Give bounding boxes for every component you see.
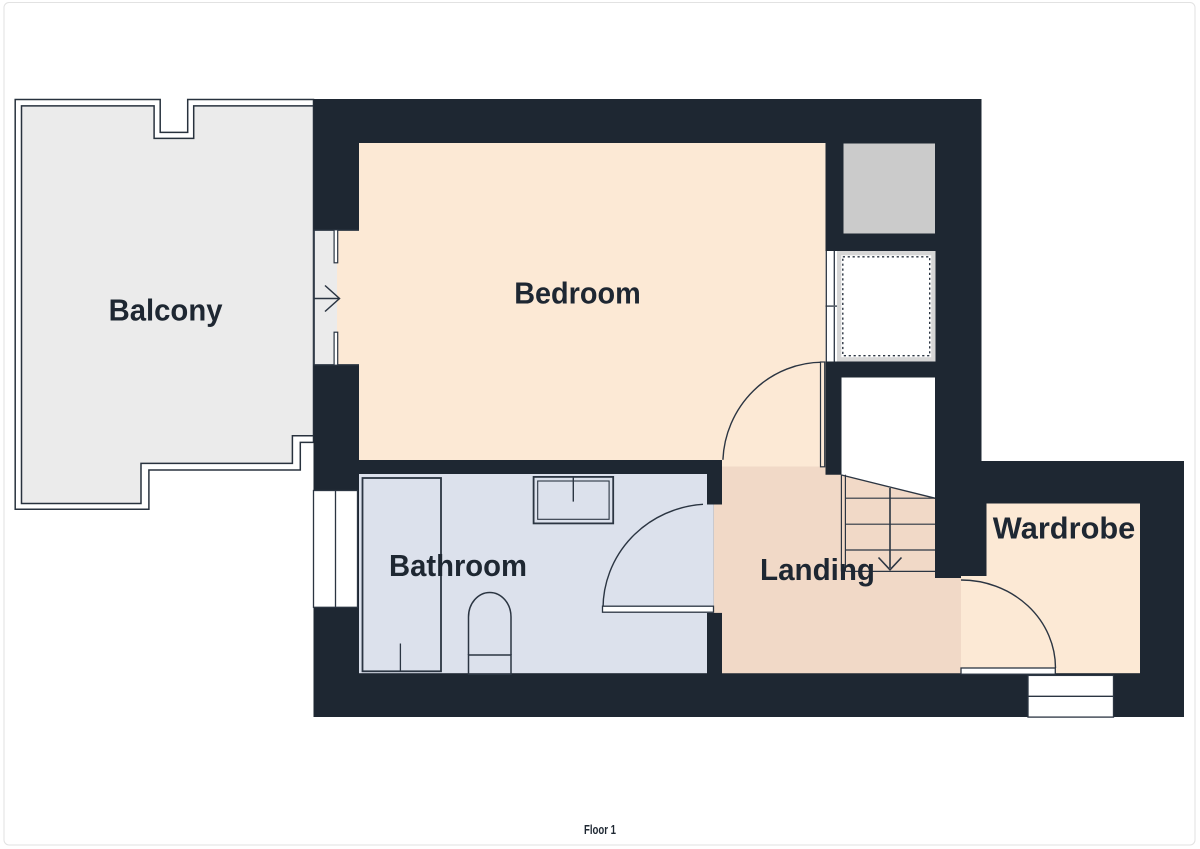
svg-text:Bedroom: Bedroom [514,275,641,310]
svg-text:Balcony: Balcony [109,293,224,328]
svg-text:Bathroom: Bathroom [389,548,527,583]
svg-text:Floor 1: Floor 1 [584,822,616,837]
svg-text:Landing: Landing [760,552,875,587]
svg-text:Wardrobe: Wardrobe [993,510,1136,545]
